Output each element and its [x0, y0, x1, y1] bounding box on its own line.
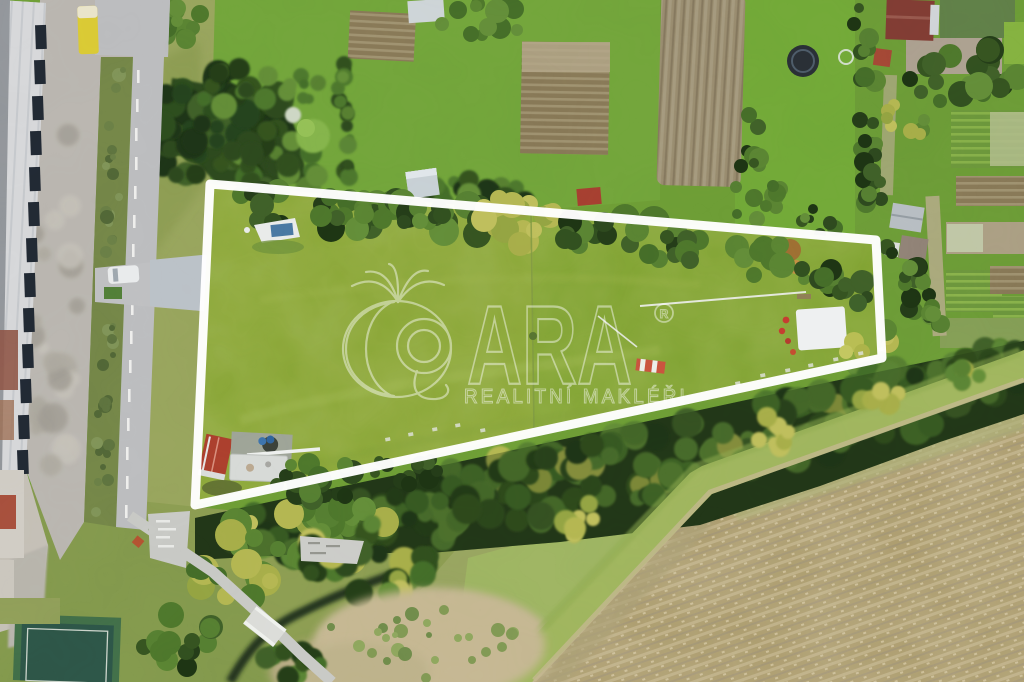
svg-text:REALITNÍ MAKLÉŘI: REALITNÍ MAKLÉŘI	[464, 385, 688, 408]
svg-text:R: R	[660, 307, 669, 321]
